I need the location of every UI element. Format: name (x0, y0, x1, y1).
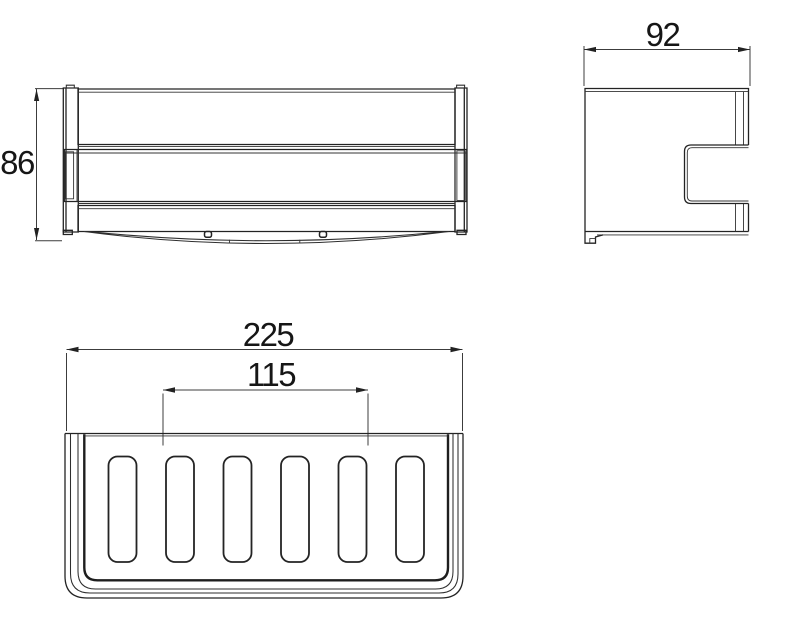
arrowhead-right-icon (451, 347, 463, 353)
drain-slot (339, 457, 367, 563)
side-view: 92 (584, 16, 750, 243)
drain-slot (281, 457, 309, 563)
arrowhead-right-icon (356, 387, 368, 393)
arrowhead-up-icon (34, 89, 39, 101)
front-end-caps (63, 88, 467, 232)
arrowhead-left-icon (163, 387, 175, 393)
arrowhead-left-icon (584, 47, 596, 52)
front-rails (64, 89, 467, 232)
dimension-line-115 (163, 390, 368, 446)
drain-slot (224, 457, 252, 563)
front-cap-top-tabs (66, 85, 464, 88)
drain-slot (109, 457, 137, 563)
front-rail-end-plates (65, 151, 465, 201)
bottom-mount-spacing-dimension: 115 (163, 356, 368, 446)
side-body (585, 89, 749, 244)
arrowhead-left-icon (67, 347, 79, 353)
arrowhead-right-icon (738, 47, 750, 52)
drawing-sheet: 86 92 (0, 0, 787, 632)
front-height-dimension: 86 (0, 89, 64, 241)
front-view: 86 (0, 85, 467, 243)
side-hook-notch-outer (685, 145, 749, 204)
front-bottom-curve (84, 232, 449, 244)
front-bottom-nub (205, 232, 212, 238)
dimension-label-225: 225 (243, 316, 294, 353)
bottom-tray-inner-wall (84, 434, 448, 580)
side-width-dimension: 92 (584, 16, 750, 86)
dimension-label-92: 92 (646, 16, 680, 53)
side-back-plate-lines (736, 92, 744, 232)
bottom-body (65, 434, 463, 599)
drain-slot (396, 457, 424, 563)
bottom-view: 225 115 (65, 316, 463, 598)
side-outline (585, 89, 749, 232)
side-hook-notch-inner (687, 148, 748, 201)
drain-slots (109, 457, 425, 563)
front-body (63, 85, 467, 243)
drawing-canvas: 86 92 (0, 0, 787, 632)
front-bottom-nub (320, 232, 327, 238)
dimension-label-86: 86 (0, 144, 34, 181)
side-foot (585, 232, 603, 244)
bottom-outline-outer (65, 434, 463, 599)
arrowhead-down-icon (34, 228, 39, 240)
dimension-line-86 (35, 89, 64, 241)
drain-slot (166, 457, 194, 563)
side-foot-inner (590, 239, 596, 244)
front-rail-inner-lines (64, 92, 467, 209)
dimension-label-115: 115 (247, 356, 295, 393)
